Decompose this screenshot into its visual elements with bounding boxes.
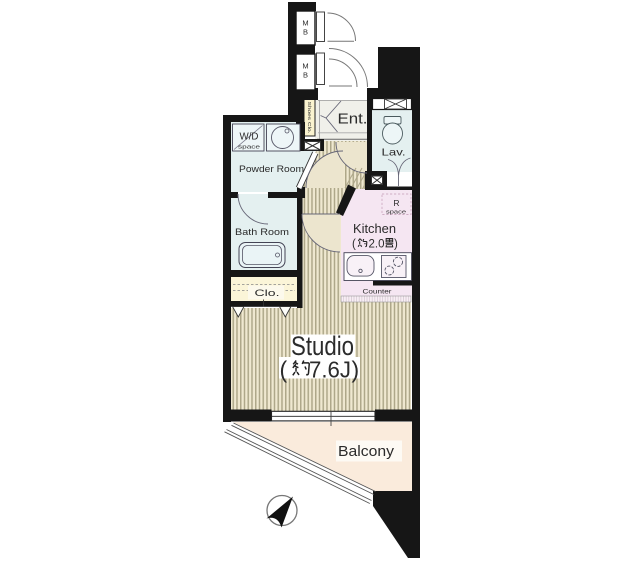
- svg-text:(: (: [280, 357, 288, 383]
- svg-text:Kitchen: Kitchen: [353, 222, 396, 236]
- svg-text:Clo.: Clo.: [255, 288, 280, 299]
- svg-text:): ): [352, 357, 360, 383]
- svg-text:2.0: 2.0: [369, 239, 385, 251]
- svg-text:7.6J: 7.6J: [309, 357, 351, 383]
- svg-text:Lav.: Lav.: [382, 147, 406, 159]
- svg-text:M: M: [302, 62, 308, 71]
- svg-text:space: space: [386, 210, 406, 216]
- svg-text:Ent.: Ent.: [338, 112, 368, 128]
- svg-text:B: B: [303, 71, 308, 80]
- svg-text:Balcony: Balcony: [338, 444, 395, 460]
- svg-text:(: (: [352, 239, 356, 251]
- svg-text:M: M: [302, 19, 308, 28]
- svg-text:R: R: [393, 198, 399, 208]
- svg-text:Bath Room: Bath Room: [235, 227, 289, 237]
- svg-text:Shoes Clo.: Shoes Clo.: [306, 102, 312, 134]
- svg-text:Powder Room: Powder Room: [239, 164, 304, 174]
- svg-text:): ): [394, 239, 398, 251]
- svg-text:W/D: W/D: [240, 132, 259, 143]
- svg-text:space: space: [238, 145, 260, 151]
- svg-text:B: B: [303, 28, 308, 37]
- svg-text:Counter: Counter: [363, 289, 393, 296]
